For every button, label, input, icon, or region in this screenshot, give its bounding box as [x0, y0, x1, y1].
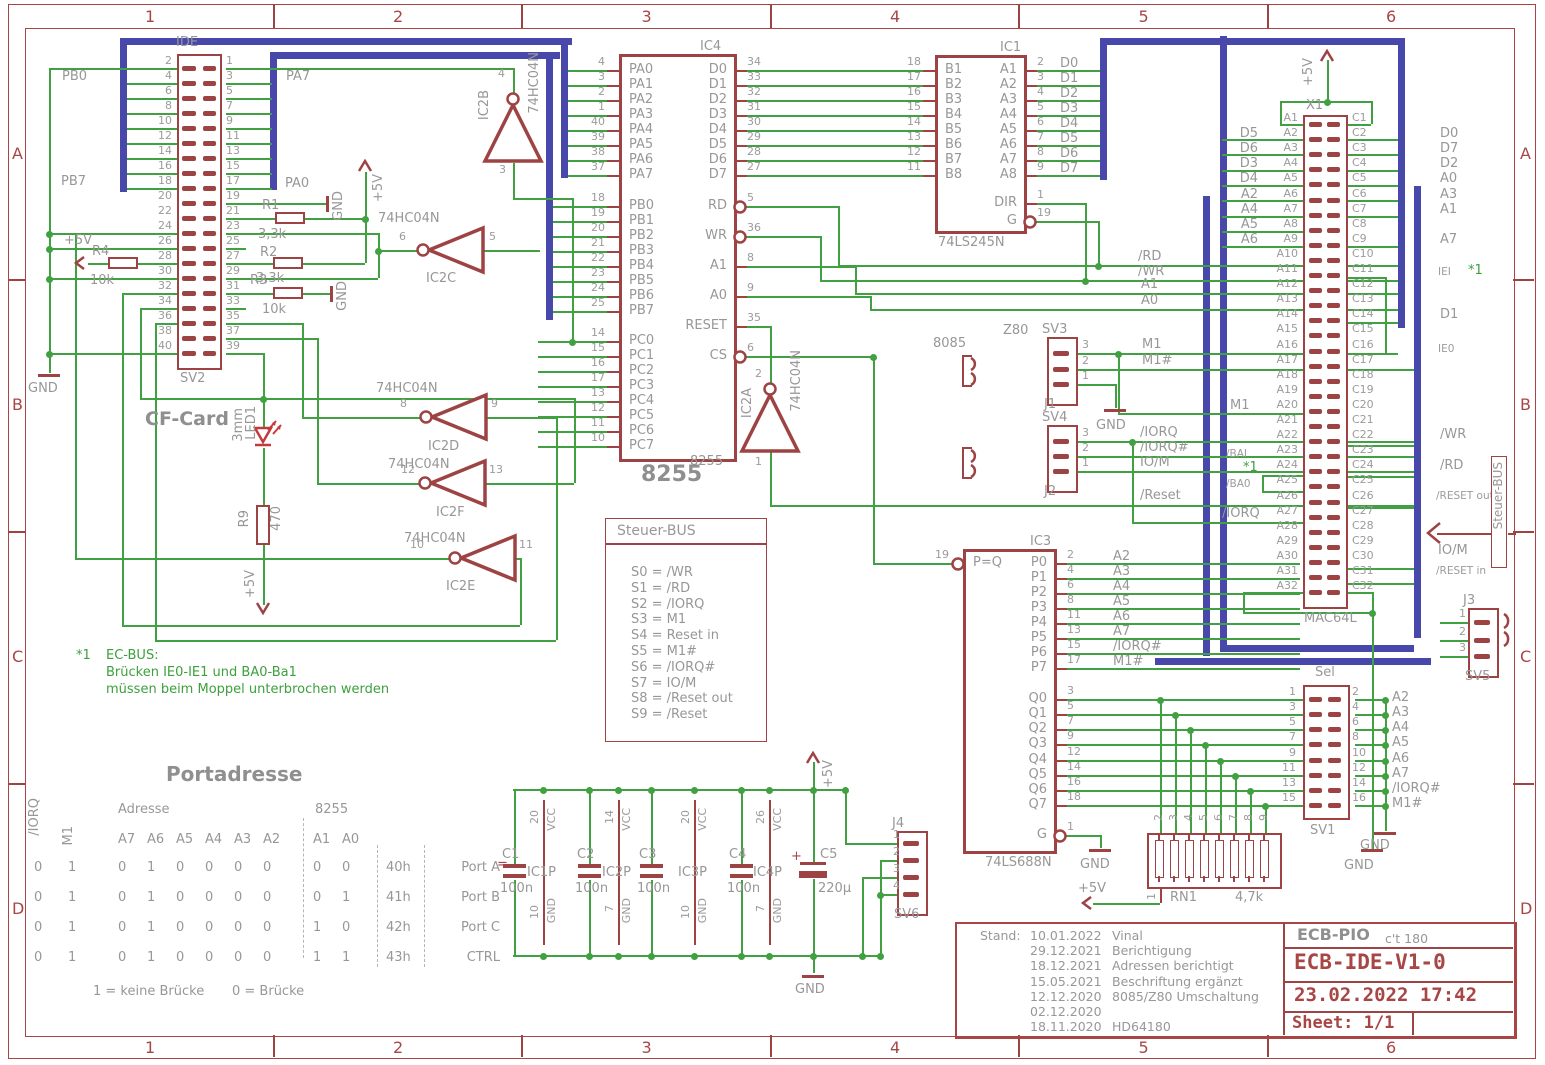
note-line: EC-BUS: [106, 648, 159, 665]
revision-note: HD64180 [1112, 1019, 1171, 1034]
pin-number: 29 [747, 131, 761, 142]
wire [122, 625, 520, 627]
pin-number: 3 [1266, 701, 1296, 712]
pin-name: C30 [1352, 550, 1374, 561]
pin-name: PC3 [629, 379, 654, 393]
wire [513, 198, 572, 200]
wire [485, 483, 574, 485]
connector-refdes: SV1 [1310, 824, 1335, 838]
pin-number: 6 [1037, 116, 1044, 127]
pin-bar [182, 336, 196, 341]
refdes: IC3 [1030, 535, 1051, 549]
value: 74LS245N [938, 236, 1005, 250]
pin-bar [1309, 454, 1322, 459]
pin-name: A24 [1258, 459, 1298, 470]
pin-bar [1309, 742, 1322, 747]
pin-number: 30 [140, 265, 172, 276]
frame-col-label: 4 [890, 9, 900, 25]
pin-number: 16 [140, 160, 172, 171]
pin-stub [607, 281, 619, 283]
pin-number: 4 [1352, 701, 1359, 712]
pin-number: 36 [747, 222, 761, 233]
pin-number: 4 [1037, 86, 1044, 97]
net-label: 13 [489, 464, 503, 475]
net-label: D0 [1440, 127, 1458, 141]
pin-name: C17 [1352, 354, 1374, 365]
wire [263, 353, 265, 398]
wire [1220, 760, 1222, 833]
pin-name: D3 [647, 108, 727, 122]
pin-bar [1327, 167, 1340, 172]
pin-name: C25 [1352, 474, 1374, 485]
pin-name: PB7 [629, 304, 654, 318]
net-label: A0 [1440, 172, 1457, 186]
pin-stub [1055, 760, 1067, 762]
pin-name: A4 [937, 108, 1017, 122]
pin-stub [1055, 653, 1067, 655]
pin-number: 36 [140, 310, 172, 321]
pin-number: 18 [1067, 791, 1081, 802]
frame-tick [8, 783, 25, 785]
frame-tick [770, 4, 772, 28]
junction-dot [1382, 697, 1389, 704]
wire [735, 175, 935, 177]
pin-number: 1 [1037, 189, 1044, 200]
table-divider [377, 845, 378, 967]
steuer-entry: S1 = /RD [631, 582, 690, 596]
wire [556, 417, 558, 640]
pin-number: 14 [571, 327, 605, 338]
pin-name: A14 [1258, 308, 1298, 319]
net-label: /IORQ [1222, 507, 1260, 521]
pin-name: A5 [1258, 172, 1298, 183]
pin-bar [1263, 876, 1265, 882]
frame-col-label: 1 [145, 9, 155, 25]
pin-number: 3 [1037, 71, 1044, 82]
connector-name: J3 [1463, 594, 1475, 608]
col-header: /IORQ [28, 798, 42, 836]
junction-dot [1382, 727, 1389, 734]
pin-stub [607, 130, 619, 132]
wire [1055, 623, 1300, 625]
wire [1115, 384, 1117, 408]
pin-bar [203, 126, 216, 131]
net-label: IC2F [436, 506, 465, 520]
pin-number: 32 [140, 280, 172, 291]
net-label: A7 [1440, 233, 1457, 247]
pin-name: A5 [937, 123, 1017, 137]
net-label: /IORQ [1140, 426, 1178, 440]
junction-dot [46, 246, 53, 253]
cell: 0 [263, 891, 271, 905]
pin-bar [182, 321, 196, 326]
pin-number: 11 [226, 130, 240, 141]
pin-bar [1309, 228, 1322, 233]
pin-bar [1327, 182, 1340, 187]
pin-stub [923, 160, 935, 162]
pin-bar [182, 126, 196, 131]
pin-name: A29 [1258, 535, 1298, 546]
junction-dot [691, 953, 698, 960]
pin-bar [182, 66, 196, 71]
pin-name: CS [647, 349, 727, 363]
junction-dot [738, 787, 745, 794]
wire [873, 356, 875, 563]
pin-number: 4 [1067, 564, 1074, 575]
frame-tick [1513, 279, 1534, 281]
net-label: IC2B [478, 90, 492, 120]
pin-bar [182, 201, 196, 206]
pin-bar [203, 96, 216, 101]
connector-j3 [1468, 608, 1499, 678]
pin-number: 12 [571, 402, 605, 413]
junction-dot [375, 248, 382, 255]
pin-number: 9 [226, 115, 233, 126]
wire [862, 877, 864, 955]
pin-name: A20 [1258, 399, 1298, 410]
pin-stub [1055, 593, 1067, 595]
net-label: A4 [1113, 580, 1130, 594]
wire [513, 68, 515, 95]
pin-number: 21 [571, 237, 605, 248]
pin-number: 12 [140, 130, 172, 141]
pin-number: 15 [226, 160, 240, 171]
steuer-entry: S2 = /IORQ [631, 598, 704, 612]
pin-name: A30 [1258, 550, 1298, 561]
pin-stub [735, 130, 747, 132]
pin-number: 33 [747, 71, 761, 82]
pin-number: 35 [747, 312, 761, 323]
junction-dot [1369, 610, 1376, 617]
pin-stub [923, 145, 935, 147]
pin-number: 3 [1168, 814, 1179, 821]
wire [303, 293, 330, 295]
pin-number: 31 [747, 101, 761, 112]
pin-number: 28 [140, 250, 172, 261]
pin-stub [735, 356, 747, 358]
pin-stub [923, 130, 935, 132]
pin-bar [1328, 773, 1341, 778]
cell: 0 [313, 891, 321, 905]
pin-number: 19 [571, 207, 605, 218]
pin-bar [1327, 303, 1340, 308]
pin-bar [203, 156, 216, 161]
connector-refdes: SV6 [894, 908, 919, 922]
pin-stub [735, 266, 747, 268]
pin-name: A0 [647, 289, 727, 303]
title-block-divider [1283, 922, 1285, 1035]
net-label: +5V [1302, 58, 1316, 86]
junction-dot [691, 787, 698, 794]
frame-row-label: B [12, 397, 23, 413]
capacitor-plate [503, 874, 526, 878]
title-block-divider [1283, 947, 1513, 949]
pin-name: A27 [1258, 505, 1298, 516]
pin-number: 8 [747, 252, 754, 263]
pin-number: 3 [1082, 339, 1102, 350]
pin-stub [1025, 221, 1037, 223]
pin-name: PB3 [629, 244, 654, 258]
pin-name: A32 [1258, 580, 1298, 591]
junction-dot [1382, 742, 1389, 749]
pin-number: 5 [747, 192, 754, 203]
pin-name: C5 [1352, 172, 1367, 183]
wire [302, 417, 420, 419]
wire [1055, 744, 1303, 746]
refdes: C1 [502, 848, 519, 862]
pin-stub [1055, 608, 1067, 610]
net-label: A5 [1222, 218, 1258, 232]
pin-stub [607, 401, 619, 403]
pin-name: G [937, 214, 1017, 228]
pin-bar [182, 186, 196, 191]
wire [1065, 835, 1100, 837]
col-header: A6 [147, 833, 164, 847]
junction-dot [46, 276, 53, 283]
junction-dot [1082, 278, 1089, 285]
pin-number: 2 [1037, 56, 1044, 67]
pin-name: A12 [1258, 278, 1298, 289]
pin-stub [735, 326, 747, 328]
box-title: Steuer-BUS [617, 524, 696, 539]
pin-number: 7 [755, 905, 766, 912]
cell: 0 [205, 921, 213, 935]
pin-number: 27 [747, 161, 761, 172]
wire [873, 563, 953, 565]
pin-bar [1327, 469, 1340, 474]
bus-wire [1398, 38, 1405, 328]
pin-bar [1474, 620, 1490, 625]
sheet-number: Sheet: 1/1 [1292, 1015, 1394, 1032]
pin-name: A18 [1258, 369, 1298, 380]
net-label: *1 [1243, 460, 1258, 477]
pin-name: A6 [1258, 188, 1298, 199]
pin-number: 14 [1067, 761, 1081, 772]
pin-name: D4 [647, 123, 727, 137]
net-label: M1 [1230, 399, 1250, 413]
pin-number: 40 [140, 340, 172, 351]
junction-dot [1202, 742, 1209, 749]
pin-bar [1309, 515, 1322, 520]
power-pin-name: IC4P [753, 866, 782, 880]
bus-wire [120, 38, 127, 192]
pin-bar [203, 246, 216, 251]
col-header: Adresse [118, 803, 170, 817]
pin-stub [735, 100, 747, 102]
pin-bar [1053, 469, 1069, 474]
divider [605, 543, 767, 545]
cell: 1 [147, 921, 155, 935]
pin-bar [1327, 590, 1340, 595]
pin-stub [1025, 70, 1037, 72]
pin-bar [1158, 876, 1160, 882]
wire [1508, 533, 1516, 535]
pin-name: Q3 [967, 737, 1047, 751]
junction-dot [586, 953, 593, 960]
wire [735, 296, 870, 298]
bus-wire [1414, 186, 1421, 638]
net-label: D7 [1060, 162, 1078, 176]
net-label: GND [332, 191, 346, 221]
refdes: IC4 [700, 40, 721, 54]
pin-name: C29 [1352, 535, 1374, 546]
revision-note: Berichtigung [1112, 943, 1192, 958]
revision-note: 8085/Z80 Umschaltung [1112, 989, 1259, 1004]
pin-bar [1309, 318, 1322, 323]
capacitor-plate [578, 864, 601, 868]
pin-name: G [967, 828, 1047, 842]
net-label: /WR [1440, 428, 1466, 442]
pin-name: PB5 [629, 274, 654, 288]
pin-name: Q2 [967, 722, 1047, 736]
cell: 0 [118, 861, 126, 875]
pin-bar [1309, 575, 1322, 580]
pin-bar [1309, 712, 1322, 717]
junction-dot [1247, 788, 1254, 795]
pin-bar [903, 841, 919, 846]
pin-name: GND [621, 898, 632, 923]
pin-number: 3 [880, 863, 900, 874]
net-label: /IORQ# [1140, 441, 1189, 455]
pin-number: 14 [604, 810, 615, 824]
pin-name: GND [697, 898, 708, 923]
wire [263, 448, 265, 505]
pin-bar [1309, 439, 1322, 444]
table-divider [424, 845, 425, 967]
pin-name: A11 [1258, 263, 1298, 274]
pin-name: C3 [1352, 142, 1367, 153]
polarity-plus: + [791, 850, 802, 863]
pin-name: A6 [937, 138, 1017, 152]
refdes: RN1 [1170, 891, 1197, 905]
wire [226, 233, 378, 235]
pin-number: 8 [1067, 594, 1074, 605]
net-label: +5V [372, 174, 386, 202]
pin-bar [1327, 439, 1340, 444]
board-name: ECB-IDE-V1-0 [1294, 952, 1446, 973]
pin-bar [1327, 333, 1340, 338]
wire [75, 233, 77, 558]
wire [1235, 775, 1237, 833]
junction-dot [1157, 697, 1164, 704]
pin-bar [1327, 454, 1340, 459]
value: 100n [575, 882, 608, 896]
pin-stub [607, 251, 619, 253]
wire [735, 266, 855, 268]
connector-refdes: J2 [1044, 485, 1056, 499]
pin-stub [1025, 100, 1037, 102]
pin-name: A15 [1258, 323, 1298, 334]
wire [1440, 656, 1468, 658]
pin-stub [1055, 729, 1067, 731]
wire [1371, 101, 1373, 124]
pin-bar [1309, 484, 1322, 489]
pin-bar [1309, 697, 1322, 702]
pin-number: 16 [571, 357, 605, 368]
pin-number: 12 [887, 146, 921, 157]
cell: 0 [176, 951, 184, 965]
cell: CTRL [440, 951, 500, 965]
pin-number: 18 [887, 56, 921, 67]
pin-bar [1327, 152, 1340, 157]
frame-col-label: 3 [642, 9, 652, 25]
junction-dot [810, 953, 817, 960]
cell: 0 [34, 921, 42, 935]
pin-number: 6 [747, 342, 754, 353]
pin-stub [1025, 160, 1037, 162]
revision-date: 18.11.2020 [1030, 1019, 1102, 1034]
pin-name: C9 [1352, 233, 1367, 244]
pin-bar [1309, 424, 1322, 429]
pin-bar [203, 66, 216, 71]
wire [513, 163, 515, 198]
pin-stub [607, 431, 619, 433]
pin-bar [1309, 122, 1322, 127]
pin-name: D0 [647, 63, 727, 77]
frame-row-label: C [12, 649, 23, 665]
pin-name: P4 [967, 616, 1047, 630]
pin-number: 20 [529, 810, 540, 824]
pin-number: 9 [1258, 814, 1269, 821]
cell: Port C [440, 921, 500, 935]
pin-bar [203, 321, 216, 326]
pin-number: 9 [1266, 747, 1296, 758]
net-label: /BA0 [1226, 479, 1251, 490]
stand-label: Stand: [980, 928, 1021, 943]
connector-name: IDE [176, 36, 198, 50]
pin-stub [1055, 790, 1067, 792]
refdes: IC1 [1000, 41, 1021, 55]
junction-dot [362, 216, 369, 223]
wire [1385, 277, 1387, 353]
wire [813, 762, 815, 789]
net-label: GND [795, 983, 825, 997]
frame-row-label: D [1520, 901, 1532, 917]
pin-stub [607, 296, 619, 298]
pin-name: VCC [772, 808, 783, 831]
steuer-entry: S5 = M1# [631, 645, 697, 659]
net-label: GND [1360, 839, 1390, 853]
pin-name: C18 [1352, 369, 1374, 380]
wire [1055, 668, 1300, 670]
title-block-divider [1412, 1011, 1414, 1035]
net-label: PA7 [286, 70, 310, 84]
gnd-symbol [1374, 832, 1396, 835]
net-label: GND [28, 382, 58, 396]
pin-name: C13 [1352, 293, 1374, 304]
junction-dot [1217, 758, 1224, 765]
wire [155, 640, 556, 642]
pin-name: C19 [1352, 384, 1374, 395]
wire [845, 789, 847, 843]
pin-bar [1309, 333, 1322, 338]
net-label: 74HC04N [528, 52, 542, 114]
net-label: +5V [244, 570, 258, 598]
net-label: 10k [90, 274, 114, 288]
pin-bar [903, 858, 919, 863]
wire [483, 250, 540, 252]
pin-number: 38 [140, 325, 172, 336]
timestamp: 23.02.2022 17:42 [1294, 986, 1477, 1005]
pin-number: 1 [1082, 370, 1102, 381]
connector-name: SV4 [1042, 411, 1067, 425]
pin-number: 30 [747, 116, 761, 127]
pin-name: GND [546, 898, 557, 923]
wire [88, 263, 108, 265]
net-label: A3 [1440, 188, 1457, 202]
junction-dot [1382, 712, 1389, 719]
pin-name: A3 [1258, 142, 1298, 153]
